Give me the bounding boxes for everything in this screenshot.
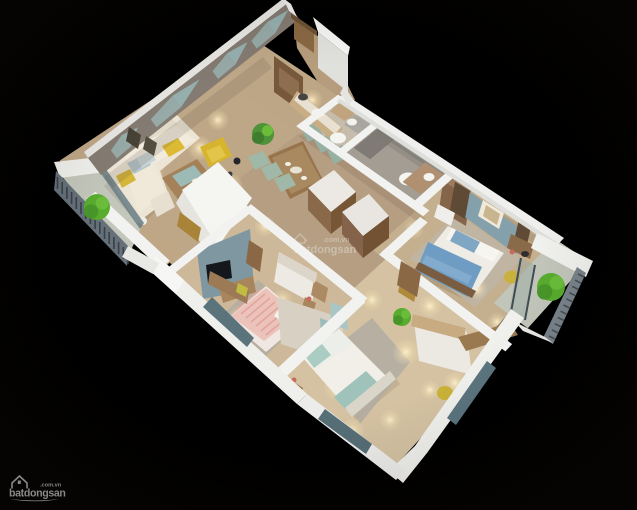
svg-text:.com.vn: .com.vn <box>40 483 62 489</box>
svg-text:batdongsan: batdongsan <box>9 488 66 500</box>
svg-text:.com.vn: .com.vn <box>323 237 349 244</box>
svg-text:batdongsan: batdongsan <box>294 244 357 256</box>
